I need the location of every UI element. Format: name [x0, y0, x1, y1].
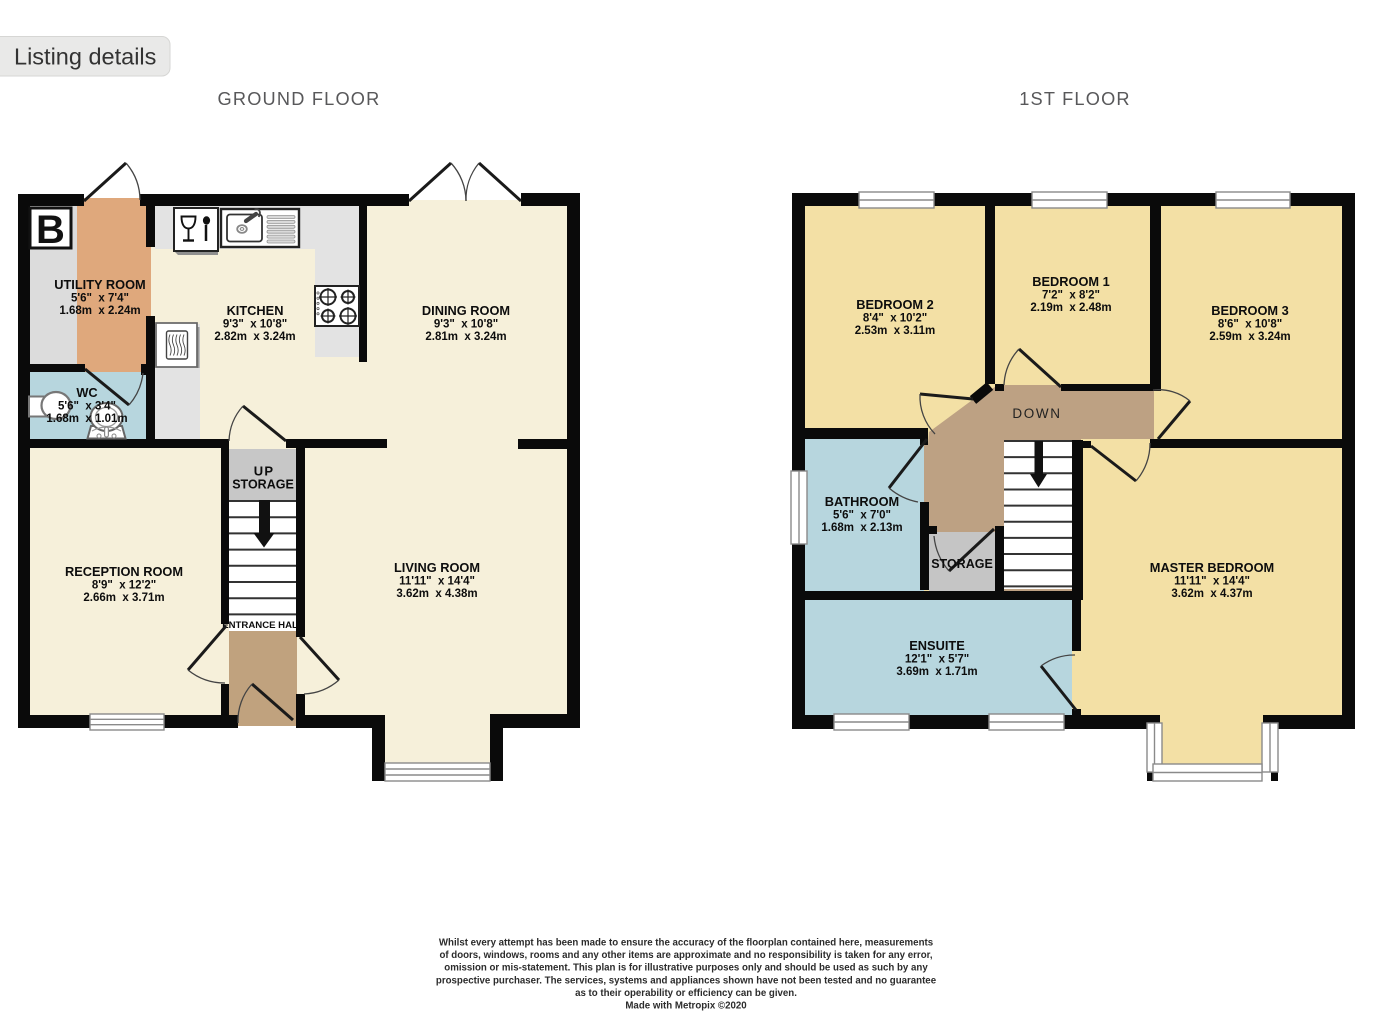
svg-text:UTILITY ROOM: UTILITY ROOM — [54, 277, 145, 292]
svg-text:ENTRANCE HALL: ENTRANCE HALL — [222, 620, 304, 631]
svg-text:2.81m x 3.24m: 2.81m x 3.24m — [425, 331, 506, 343]
svg-text:DINING ROOM: DINING ROOM — [422, 303, 510, 318]
svg-text:1ST FLOOR: 1ST FLOOR — [1019, 89, 1131, 109]
svg-text:LIVING ROOM: LIVING ROOM — [394, 560, 480, 575]
svg-text:7'2" x 8'2": 7'2" x 8'2" — [1042, 290, 1100, 302]
svg-text:2.82m x 3.24m: 2.82m x 3.24m — [214, 331, 295, 343]
svg-text:8'6" x 10'8": 8'6" x 10'8" — [1218, 319, 1282, 331]
svg-text:2.53m x 3.11m: 2.53m x 3.11m — [855, 325, 936, 337]
svg-text:B: B — [36, 208, 65, 252]
svg-text:11'11" x 14'4": 11'11" x 14'4" — [399, 576, 475, 588]
svg-text:BEDROOM 1: BEDROOM 1 — [1032, 274, 1110, 289]
svg-text:2.59m x 3.24m: 2.59m x 3.24m — [1209, 331, 1290, 343]
svg-text:5'6" x 7'4": 5'6" x 7'4" — [71, 293, 129, 305]
svg-text:1.68m x 2.13m: 1.68m x 2.13m — [821, 522, 902, 534]
svg-text:3.62m x 4.38m: 3.62m x 4.38m — [396, 588, 477, 600]
svg-text:2.19m x 2.48m: 2.19m x 2.48m — [1030, 302, 1111, 314]
svg-text:3.62m x 4.37m: 3.62m x 4.37m — [1171, 588, 1252, 600]
svg-text:2.66m x 3.71m: 2.66m x 3.71m — [83, 592, 164, 604]
svg-text:WC: WC — [76, 385, 97, 400]
svg-text:11'11" x 14'4": 11'11" x 14'4" — [1174, 576, 1250, 588]
svg-text:of doors, windows, rooms and a: of doors, windows, rooms and any other i… — [439, 950, 932, 961]
svg-text:BATHROOM: BATHROOM — [825, 494, 899, 509]
svg-text:3.69m x 1.71m: 3.69m x 1.71m — [896, 666, 977, 678]
svg-text:MASTER BEDROOM: MASTER BEDROOM — [1150, 560, 1274, 575]
svg-text:Whilst every attempt has been: Whilst every attempt has been made to en… — [439, 937, 933, 948]
svg-text:ENSUITE: ENSUITE — [909, 638, 965, 653]
svg-text:1.68m x 1.01m: 1.68m x 1.01m — [46, 413, 127, 425]
svg-text:UP: UP — [254, 464, 274, 479]
svg-text:DOWN: DOWN — [1012, 406, 1061, 421]
svg-text:omission or mis-statement. Thi: omission or mis-statement. This plan is … — [444, 963, 928, 974]
svg-text:8'9" x 12'2": 8'9" x 12'2" — [92, 580, 156, 592]
svg-text:9'3" x 10'8": 9'3" x 10'8" — [434, 319, 498, 331]
svg-text:8'4" x 10'2": 8'4" x 10'2" — [863, 313, 927, 325]
svg-text:KITCHEN: KITCHEN — [227, 303, 284, 318]
svg-text:5'6" x 7'0": 5'6" x 7'0" — [833, 510, 891, 522]
svg-text:STORAGE: STORAGE — [232, 478, 294, 492]
svg-text:GROUND FLOOR: GROUND FLOOR — [218, 89, 381, 109]
svg-text:STORAGE: STORAGE — [931, 557, 993, 571]
svg-text:12'1" x 5'7": 12'1" x 5'7" — [905, 654, 969, 666]
svg-text:5'6" x 3'4": 5'6" x 3'4" — [58, 401, 116, 413]
svg-text:BEDROOM 2: BEDROOM 2 — [856, 297, 934, 312]
svg-text:prospective purchaser. The ser: prospective purchaser. The services, sys… — [436, 975, 937, 986]
svg-text:Made with Metropix ©2020: Made with Metropix ©2020 — [625, 1001, 746, 1012]
svg-text:RECEPTION ROOM: RECEPTION ROOM — [65, 564, 183, 579]
svg-text:1.68m x 2.24m: 1.68m x 2.24m — [59, 305, 140, 317]
svg-text:BEDROOM 3: BEDROOM 3 — [1211, 303, 1289, 318]
svg-text:Listing details: Listing details — [14, 44, 156, 70]
svg-text:as to their operability or eff: as to their operability or efficiency ca… — [575, 988, 797, 999]
svg-text:9'3" x 10'8": 9'3" x 10'8" — [223, 319, 287, 331]
